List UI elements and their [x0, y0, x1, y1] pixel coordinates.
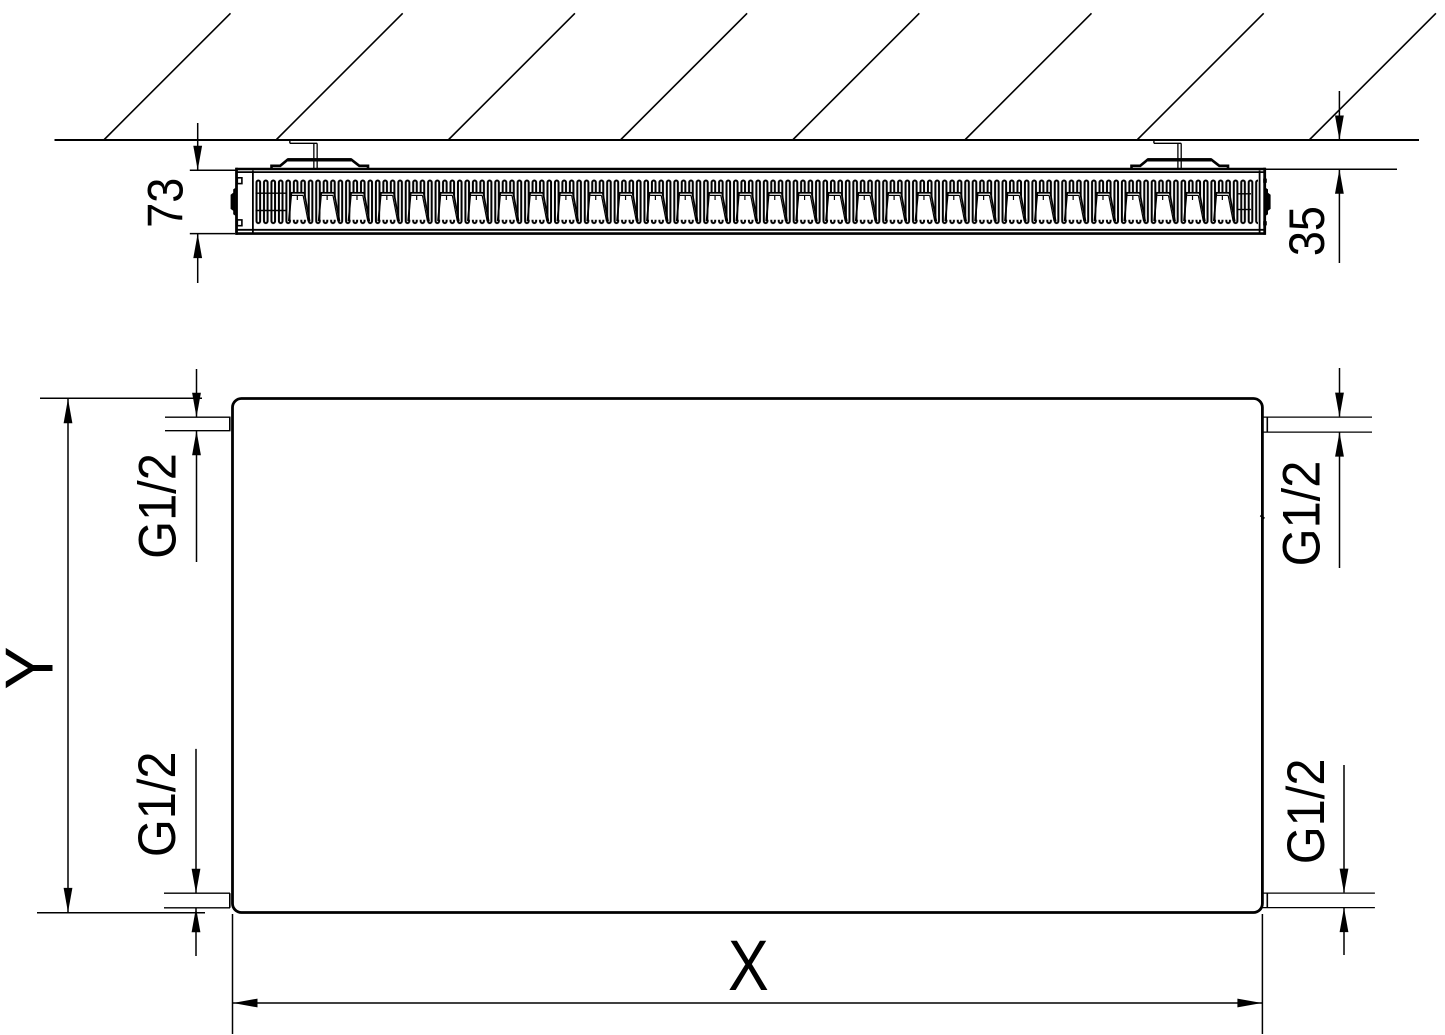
- svg-text:35: 35: [1280, 206, 1336, 256]
- svg-text:73: 73: [138, 178, 194, 228]
- svg-text:G1/2: G1/2: [127, 751, 186, 857]
- svg-text:G1/2: G1/2: [1276, 759, 1335, 865]
- svg-text:Y: Y: [0, 646, 68, 689]
- svg-text:G1/2: G1/2: [127, 453, 186, 559]
- svg-text:G1/2: G1/2: [1271, 461, 1330, 567]
- svg-text:X: X: [728, 927, 769, 1006]
